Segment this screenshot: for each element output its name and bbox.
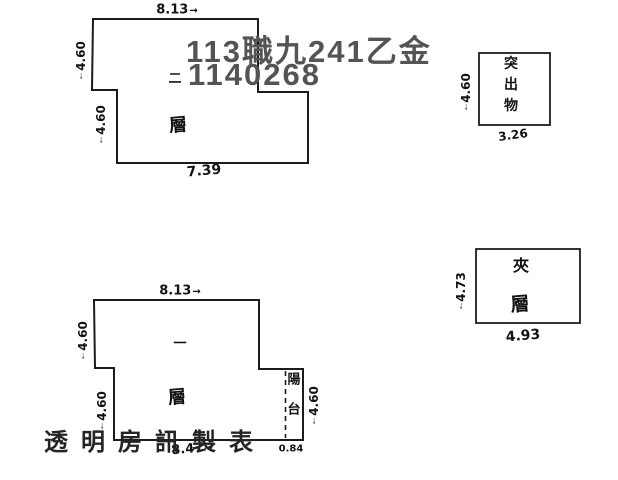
dim-arrow-icon: → (189, 6, 197, 17)
mezzanine-label-char-bottom: 層 (509, 289, 530, 318)
mezzanine-label-char-top: 夾 (513, 252, 529, 276)
publisher-watermark: 透明房訊製表 (44, 422, 266, 457)
dim-bottom-balcony: 0.84 (279, 444, 304, 455)
dim-left-upper-first-floor: 4.60 (76, 321, 90, 351)
dim-arrow-icon: ↓ (99, 135, 104, 146)
dim-right-first-floor: 4.60 (307, 386, 321, 416)
dim-left-lower-first-floor: 4.60 (95, 391, 109, 421)
dim-value: 8.13 (156, 3, 188, 18)
floor-number-label-first-floor: 一 (173, 333, 186, 352)
dim-arrow-icon: ↓ (459, 301, 464, 312)
scanned-floorplan-sheet: 113職九241乙金 1140268 8.13→ 4.60 ↓ 4.60 ↓ 7… (0, 0, 618, 480)
floor-number-label-second-floor: 二 (168, 68, 181, 87)
dim-top-second-floor: 8.13→ (156, 3, 197, 18)
dim-bottom-mezzanine: 4.93 (505, 327, 541, 346)
floor-label-first-floor: 層 (167, 382, 187, 409)
first-floor-outline (94, 300, 303, 440)
dim-left-lower-second-floor: 4.60 (94, 105, 108, 135)
dim-left-mezzanine: 4.73 (454, 272, 468, 302)
case-number-stamp-line2: 1140268 (188, 57, 321, 93)
dim-arrow-icon: ↓ (81, 351, 86, 362)
balcony-label: 陽台 (284, 372, 303, 432)
dim-left-protrusion: 4.60 (459, 73, 473, 103)
dim-arrow-icon: ↓ (312, 416, 317, 427)
dim-arrow-icon: ↓ (79, 71, 84, 82)
dim-arrow-icon: → (192, 287, 200, 298)
dim-value: 8.13 (159, 284, 191, 299)
dim-bottom-second-floor: 7.39 (186, 162, 222, 181)
dim-arrow-icon: ↓ (464, 102, 469, 113)
dim-top-first-floor: 8.13→ (159, 284, 200, 299)
protrusion-label: 突出物 (501, 56, 521, 119)
dim-left-upper-second-floor: 4.60 (74, 41, 88, 71)
floor-label-second-floor: 層 (168, 110, 188, 137)
